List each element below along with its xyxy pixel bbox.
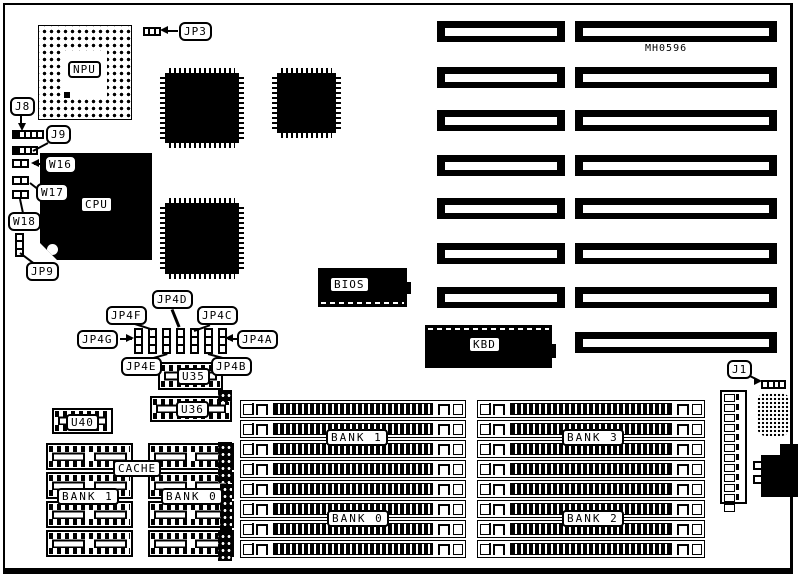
arrowhead [126,334,138,342]
jumper-label-jp3: JP3 [179,22,212,41]
socket-label-u36: U36 [176,401,209,418]
memory-bank2-label: BANK 2 [562,510,624,527]
isa-slot-segment [575,243,777,264]
isa-slot-segment [437,110,565,131]
small-ic [218,390,232,402]
cache-bank0-label: BANK 0 [161,488,223,505]
jumper-jp4-4 [176,328,185,354]
simm-socket [240,460,466,478]
motherboard-diagram: NPU JP3 CPU J8 J9 W16 W17 W18 JP9 JP4D J… [0,0,798,580]
isa-slot-segment [437,287,565,308]
keyboard-connector-tab [753,475,763,484]
jumper-label-jp4e: JP4E [121,357,162,376]
qfp-chip [272,68,341,138]
jumper-label-jp4a: JP4A [237,330,278,349]
pin1-marker [64,92,70,98]
jumper-label-jp4b: JP4B [211,357,252,376]
isa-slot-segment [575,198,777,219]
isa-slot-segment [575,155,777,176]
jumper-jp4-6 [204,328,213,354]
memory-bank0-label: BANK 0 [327,510,389,527]
socket-label-u40: U40 [66,414,99,431]
chip-notch-line [428,328,549,330]
simm-socket [240,400,466,418]
jumper-jp4-3 [162,328,171,354]
memory-bank1-label: BANK 1 [326,429,388,446]
isa-slot-segment [575,110,777,131]
isa-slot-segment [437,67,565,88]
arrowhead [18,123,26,135]
din-connector [757,393,790,436]
jumper-jp4-5 [190,328,199,354]
jumper-w17 [12,176,29,185]
kbd-chip-tab [552,344,556,358]
jumper-label-w18: W18 [8,212,41,231]
jumper-j8 [12,130,44,139]
isa-slot-segment [575,287,777,308]
qfp-chip [160,198,244,279]
arrowhead [156,26,168,34]
jumper-label-j8: J8 [10,97,35,116]
kbd-label: KBD [468,336,501,353]
jumper-label-jp9: JP9 [26,262,59,281]
isa-slot-segment [437,243,565,264]
jumper-label-w17: W17 [36,183,69,202]
board-part-number: MH0596 [645,43,687,54]
simm-socket [240,540,466,558]
simm-socket [477,400,705,418]
simm-socket [477,540,705,558]
bios-label: BIOS [329,276,370,293]
arrowhead [754,377,766,385]
chip-notch-line [321,302,404,304]
jumper-jp4-2 [148,328,157,354]
cache-bank1-label: BANK 1 [57,488,119,505]
qfp-chip [160,68,244,148]
isa-slot-segment [575,67,777,88]
keyboard-connector-tab [753,461,763,470]
jumper-label-w16: W16 [44,155,77,174]
power-connector [720,390,747,504]
arrowhead [221,334,233,342]
jumper-label-jp4f: JP4F [106,306,147,325]
jumper-w18 [12,190,29,199]
isa-slot-segment [575,21,777,42]
simm-socket [240,480,466,498]
isa-slot-segment [437,155,565,176]
isa-slot-segment [437,198,565,219]
jumper-label-j1: J1 [727,360,752,379]
jumper-label-jp4g: JP4G [77,330,118,349]
simm-socket [477,460,705,478]
cache-socket [46,501,133,528]
isa-slot-segment [437,21,565,42]
power-connector-key-line [736,394,739,500]
jumper-label-j9: J9 [46,125,71,144]
bios-chip-tab [407,282,411,294]
cache-label: CACHE [113,460,161,477]
jumper-label-jp4c: JP4C [197,306,238,325]
cache-socket [46,530,133,557]
small-ic [218,442,232,483]
npu-label: NPU [68,61,101,78]
power-connector-pins [724,394,735,512]
cpu-label: CPU [80,196,113,213]
jumper-label-jp4d: JP4D [152,290,193,309]
isa-slot-segment [575,332,777,353]
memory-bank3-label: BANK 3 [562,429,624,446]
arrowhead [27,159,39,167]
small-ic [218,531,232,561]
socket-label-u35: U35 [177,368,210,385]
simm-socket [477,480,705,498]
